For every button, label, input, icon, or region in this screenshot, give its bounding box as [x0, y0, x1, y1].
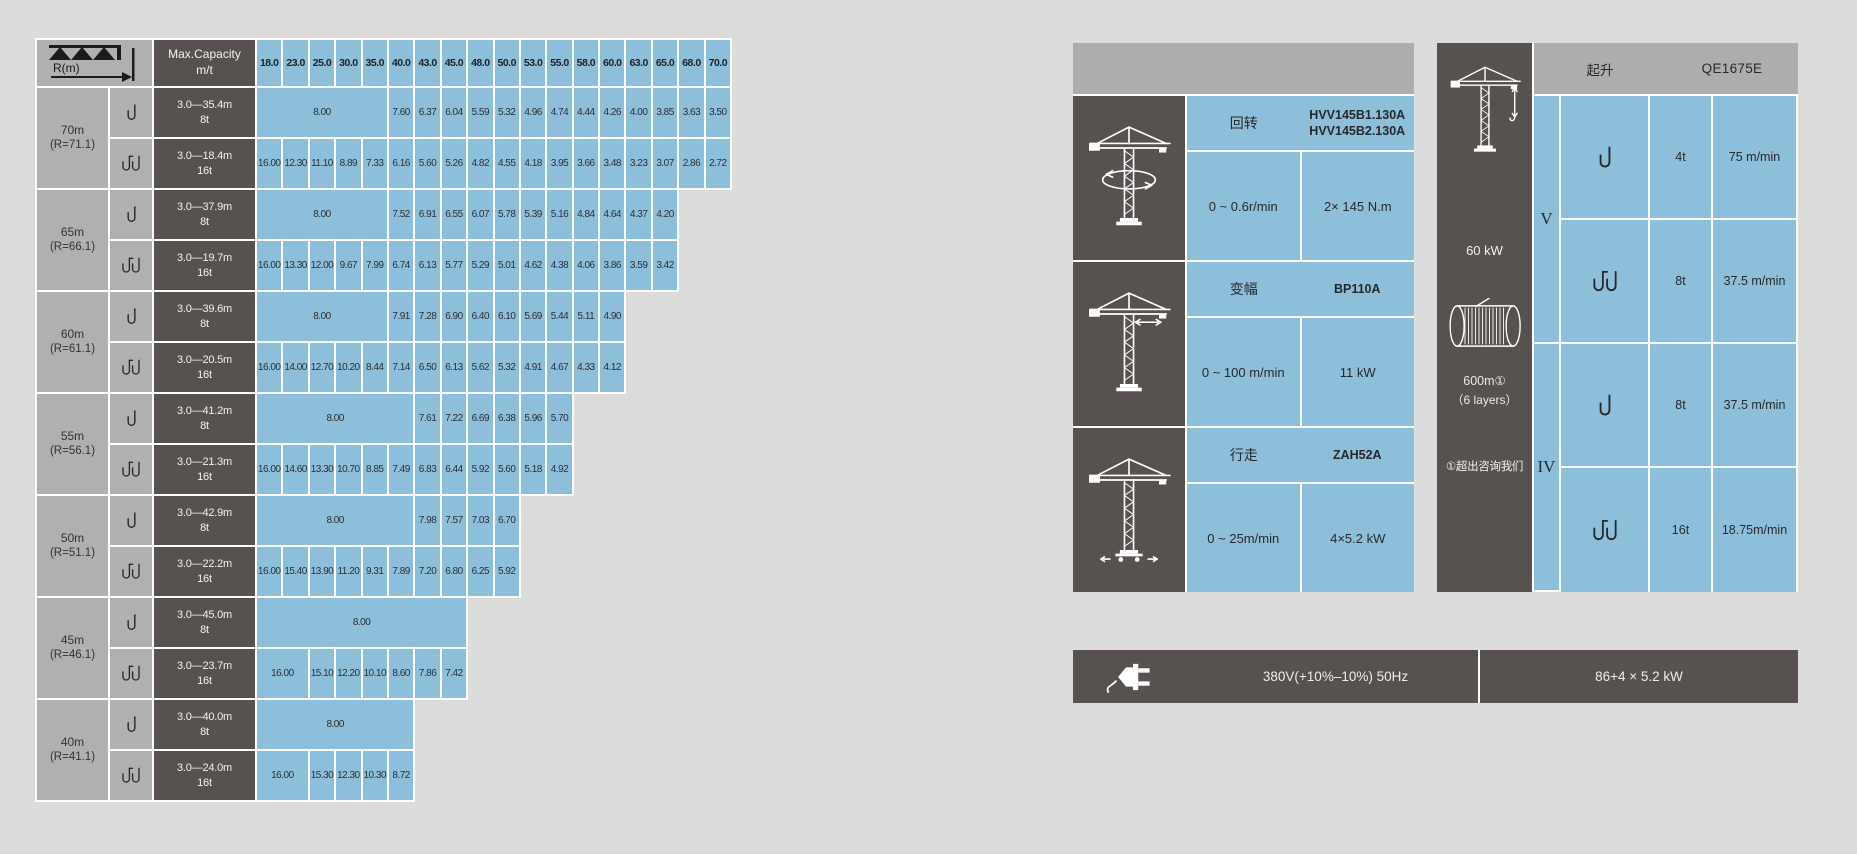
working-range: 3.0—41.2m — [177, 404, 232, 419]
rope-footnote: ①超出咨询我们 — [1437, 458, 1532, 474]
capacity-cell: 9.67 — [336, 241, 362, 292]
radius-column-header: 70.0 — [706, 40, 732, 88]
single-hook-icon — [124, 307, 139, 326]
max-load: 8t — [200, 113, 209, 128]
single-hook-icon — [124, 205, 139, 224]
capacity-cell: 6.55 — [442, 190, 468, 241]
radius-axis-label: R(m) — [53, 61, 80, 75]
capacity-cell: 3.07 — [653, 139, 679, 190]
hoist-motor-column: 60 kW 600m① （6 layers） ①超出咨询我们 — [1437, 43, 1534, 592]
working-range: 3.0—23.7m — [177, 659, 232, 674]
jib-length-cell: 55m(R=56.1) — [37, 394, 110, 496]
working-range-cell: 3.0—42.9m8t — [154, 496, 257, 547]
hook-config-cell — [110, 751, 154, 802]
capacity-cell: 3.42 — [653, 241, 679, 292]
radius-column-header: 35.0 — [363, 40, 389, 88]
mechanism-power: 11 kW — [1300, 318, 1415, 426]
hook-config-cell — [110, 88, 154, 139]
capacity-cell: 5.77 — [442, 241, 468, 292]
capacity-cell: 5.32 — [495, 343, 521, 394]
capacity-cell: 4.06 — [574, 241, 600, 292]
jib-length-cell: 70m(R=71.1) — [37, 88, 110, 190]
double-hook-icon — [119, 256, 143, 275]
radius-column-header: 43.0 — [415, 40, 441, 88]
capacity-cell: 6.37 — [415, 88, 441, 139]
capacity-cell: 5.44 — [547, 292, 573, 343]
capacity-cell: 15.10 — [310, 649, 336, 700]
rope-drum-illustration — [1444, 298, 1528, 359]
hoist-load-cell: 4t — [1650, 96, 1713, 220]
capacity-cell: 7.57 — [442, 496, 468, 547]
capacity-span-cell: 8.00 — [257, 190, 389, 241]
working-range: 3.0—45.0m — [177, 608, 232, 623]
capacity-cell: 4.84 — [574, 190, 600, 241]
single-hook-icon — [124, 103, 139, 122]
hoist-speed-cell: 75 m/min — [1713, 96, 1798, 220]
max-load: 8t — [200, 215, 209, 230]
radius-column-header: 40.0 — [389, 40, 415, 88]
capacity-cell: 14.00 — [283, 343, 309, 394]
capacity-cell: 10.70 — [336, 445, 362, 496]
working-range: 3.0—42.9m — [177, 506, 232, 521]
capacity-cell: 3.50 — [706, 88, 732, 139]
capacity-span-cell: 16.00 — [257, 649, 310, 700]
max-radius: (R=66.1) — [50, 240, 95, 255]
capacity-cell: 12.30 — [283, 139, 309, 190]
capacity-cell: 16.00 — [257, 547, 283, 598]
capacity-cell: 5.18 — [521, 445, 547, 496]
capacity-cell: 5.92 — [468, 445, 494, 496]
mechanism-name: 回转 — [1187, 113, 1301, 133]
capacity-cell: 8.72 — [389, 751, 415, 802]
capacity-cell: 7.22 — [442, 394, 468, 445]
spec-section-travel: 行走ZAH52A0 ~ 25m/min4×5.2 kW — [1073, 428, 1414, 592]
capacity-cell: 6.04 — [442, 88, 468, 139]
rope-drum-icon — [1444, 298, 1528, 354]
capacity-cell: 13.90 — [310, 547, 336, 598]
capacity-cell: 4.91 — [521, 343, 547, 394]
jib-length: 70m — [61, 123, 84, 139]
capacity-cell: 16.00 — [257, 343, 283, 394]
double-hook-icon — [119, 154, 143, 173]
hook-config-cell — [110, 700, 154, 751]
capacity-cell: 4.18 — [521, 139, 547, 190]
single-hook-icon — [124, 511, 139, 530]
spec-right: 回转HVV145B1.130AHVV145B2.130A0 ~ 0.6r/min… — [1187, 96, 1414, 260]
trolley-crane-icon — [1079, 281, 1179, 407]
capacity-cell: 4.96 — [521, 88, 547, 139]
capacity-cell: 7.61 — [415, 394, 441, 445]
capacity-span-cell: 8.00 — [257, 496, 415, 547]
capacity-cell: 3.23 — [626, 139, 652, 190]
jib-length-cell: 60m(R=61.1) — [37, 292, 110, 394]
max-capacity-line1: Max.Capacity — [168, 47, 241, 63]
load-capacity-table: R(m) Max.Capacity m/t 18.023.025.030.035… — [35, 38, 732, 802]
double-hook-icon — [1589, 518, 1621, 543]
capacity-cell: 4.00 — [626, 88, 652, 139]
capacity-cell: 3.95 — [547, 139, 573, 190]
capacity-cell: 5.32 — [495, 88, 521, 139]
hoist-title: 起升 — [1534, 59, 1666, 79]
capacity-cell: 7.28 — [415, 292, 441, 343]
working-range-cell: 3.0—37.9m8t — [154, 190, 257, 241]
supply-voltage: 380V(+10%–10%) 50Hz — [1193, 650, 1480, 703]
radius-column-header: 63.0 — [626, 40, 652, 88]
hoist-table-area: 起升 QE1675E V4t75 m/min8t37.5 m/minIV8t37… — [1534, 43, 1798, 592]
capacity-cell: 6.10 — [495, 292, 521, 343]
radius-column-header: 25.0 — [310, 40, 336, 88]
capacity-cell: 5.26 — [442, 139, 468, 190]
capacity-cell: 8.85 — [363, 445, 389, 496]
capacity-cell: 6.69 — [468, 394, 494, 445]
capacity-cell: 4.90 — [600, 292, 626, 343]
plug-icon-cell — [1073, 650, 1193, 703]
radius-column-header: 55.0 — [547, 40, 573, 88]
spec-label-row: 回转HVV145B1.130AHVV145B2.130A — [1187, 96, 1414, 152]
mechanism-spec-panel: 回转HVV145B1.130AHVV145B2.130A0 ~ 0.6r/min… — [1073, 43, 1414, 592]
capacity-cell: 6.70 — [495, 496, 521, 547]
capacity-cell: 3.48 — [600, 139, 626, 190]
capacity-span-cell: 8.00 — [257, 292, 389, 343]
capacity-cell: 7.89 — [389, 547, 415, 598]
double-hook-icon — [119, 358, 143, 377]
jib-length-cell: 45m(R=46.1) — [37, 598, 110, 700]
mechanism-power: 2× 145 N.m — [1300, 152, 1415, 260]
capacity-cell: 4.20 — [653, 190, 679, 241]
mechanism-model-line: HVV145B1.130A — [1301, 107, 1415, 123]
double-hook-icon — [119, 664, 143, 683]
hoist-load-cell: 8t — [1650, 220, 1713, 344]
capacity-cell: 7.03 — [468, 496, 494, 547]
radius-column-header: 45.0 — [442, 40, 468, 88]
working-range: 3.0—18.4m — [177, 149, 232, 164]
gear-label-cell: V — [1534, 96, 1561, 344]
mechanism-model: BP110A — [1301, 281, 1415, 297]
working-range: 3.0—37.9m — [177, 200, 232, 215]
capacity-cell: 12.70 — [310, 343, 336, 394]
mechanism-power: 4×5.2 kW — [1300, 484, 1415, 592]
capacity-cell: 6.13 — [415, 241, 441, 292]
jib-length: 45m — [61, 633, 84, 649]
mechanism-model: HVV145B1.130AHVV145B2.130A — [1301, 107, 1415, 140]
table-corner-cell: R(m) — [37, 40, 154, 88]
capacity-cell: 5.96 — [521, 394, 547, 445]
jib-length-cell: 40m(R=41.1) — [37, 700, 110, 802]
radius-column-header: 50.0 — [495, 40, 521, 88]
max-load: 8t — [200, 317, 209, 332]
capacity-span-cell: 8.00 — [257, 598, 468, 649]
spec-right: 变幅BP110A0 ~ 100 m/min11 kW — [1187, 262, 1414, 426]
capacity-cell: 11.20 — [336, 547, 362, 598]
working-range-cell: 3.0—41.2m8t — [154, 394, 257, 445]
max-load: 16t — [197, 776, 212, 791]
capacity-cell: 6.38 — [495, 394, 521, 445]
spec-illustration-cell — [1073, 96, 1187, 260]
mechanism-model-line: HVV145B2.130A — [1301, 123, 1415, 139]
single-hook-icon — [124, 613, 139, 632]
capacity-cell: 10.10 — [363, 649, 389, 700]
capacity-cell: 4.38 — [547, 241, 573, 292]
hook-config-cell — [110, 496, 154, 547]
capacity-cell: 4.62 — [521, 241, 547, 292]
max-capacity-header: Max.Capacity m/t — [154, 40, 257, 88]
hoist-speed-cell: 18.75m/min — [1713, 468, 1798, 592]
hoist-crane-icon — [1442, 57, 1528, 165]
capacity-cell: 5.60 — [495, 445, 521, 496]
radius-column-header: 30.0 — [336, 40, 362, 88]
hook-config-cell — [110, 241, 154, 292]
capacity-cell: 6.83 — [415, 445, 441, 496]
spec-section-slewing: 回转HVV145B1.130AHVV145B2.130A0 ~ 0.6r/min… — [1073, 96, 1414, 262]
capacity-cell: 11.10 — [310, 139, 336, 190]
capacity-cell: 13.30 — [283, 241, 309, 292]
radius-column-header: 48.0 — [468, 40, 494, 88]
spec-data-row: 0 ~ 100 m/min11 kW — [1187, 318, 1414, 426]
max-radius: (R=56.1) — [50, 444, 95, 459]
hoist-speed-cell: 37.5 m/min — [1713, 220, 1798, 344]
hook-config-cell — [110, 547, 154, 598]
capacity-cell: 5.78 — [495, 190, 521, 241]
capacity-cell: 8.89 — [336, 139, 362, 190]
max-load: 8t — [200, 725, 209, 740]
capacity-cell: 9.31 — [363, 547, 389, 598]
single-hook-icon — [1595, 393, 1615, 418]
capacity-cell: 5.60 — [415, 139, 441, 190]
jib-length: 40m — [61, 735, 84, 751]
radius-column-header: 60.0 — [600, 40, 626, 88]
capacity-cell: 5.16 — [547, 190, 573, 241]
capacity-cell: 6.25 — [468, 547, 494, 598]
radius-column-header: 68.0 — [679, 40, 705, 88]
capacity-cell: 3.66 — [574, 139, 600, 190]
capacity-cell: 5.70 — [547, 394, 573, 445]
capacity-cell: 15.40 — [283, 547, 309, 598]
capacity-cell: 2.86 — [679, 139, 705, 190]
jib-length-cell: 65m(R=66.1) — [37, 190, 110, 292]
spec-data-row: 0 ~ 0.6r/min2× 145 N.m — [1187, 152, 1414, 260]
capacity-cell: 6.40 — [468, 292, 494, 343]
spec-panel-header-bar — [1073, 43, 1414, 96]
capacity-cell: 5.11 — [574, 292, 600, 343]
working-range-cell: 3.0—22.2m16t — [154, 547, 257, 598]
capacity-cell: 5.01 — [495, 241, 521, 292]
working-range: 3.0—21.3m — [177, 455, 232, 470]
mechanism-model: ZAH52A — [1301, 447, 1415, 463]
hoist-motor-power: 60 kW — [1437, 243, 1532, 258]
capacity-cell: 6.80 — [442, 547, 468, 598]
working-range-cell: 3.0—45.0m8t — [154, 598, 257, 649]
hook-config-cell — [110, 292, 154, 343]
hoist-crane-illustration — [1442, 57, 1528, 170]
max-radius: (R=71.1) — [50, 138, 95, 153]
mechanism-name: 变幅 — [1187, 279, 1301, 299]
capacity-cell: 4.67 — [547, 343, 573, 394]
radius-column-header: 65.0 — [653, 40, 679, 88]
jib-length: 55m — [61, 429, 84, 445]
hook-config-cell — [110, 343, 154, 394]
slewing-crane-icon — [1079, 115, 1179, 241]
capacity-cell: 7.33 — [363, 139, 389, 190]
single-hook-icon — [124, 715, 139, 734]
mechanism-speed: 0 ~ 0.6r/min — [1187, 152, 1300, 260]
spec-label-row: 变幅BP110A — [1187, 262, 1414, 318]
spec-illustration-cell — [1073, 428, 1187, 592]
capacity-cell: 6.07 — [468, 190, 494, 241]
capacity-cell: 8.60 — [389, 649, 415, 700]
capacity-cell: 7.14 — [389, 343, 415, 394]
capacity-cell: 7.20 — [415, 547, 441, 598]
capacity-cell: 7.98 — [415, 496, 441, 547]
working-range-cell: 3.0—23.7m16t — [154, 649, 257, 700]
capacity-cell: 12.30 — [336, 751, 362, 802]
double-hook-icon — [119, 460, 143, 479]
capacity-cell: 14.60 — [283, 445, 309, 496]
working-range: 3.0—39.6m — [177, 302, 232, 317]
max-load: 16t — [197, 674, 212, 689]
hoist-hook-cell — [1561, 344, 1650, 468]
capacity-cell: 5.59 — [468, 88, 494, 139]
capacity-cell: 4.92 — [547, 445, 573, 496]
spec-data-row: 0 ~ 25m/min4×5.2 kW — [1187, 484, 1414, 592]
capacity-cell: 4.33 — [574, 343, 600, 394]
jib-radius-icon: R(m) — [43, 41, 147, 85]
radius-column-header: 23.0 — [283, 40, 309, 88]
capacity-cell: 7.52 — [389, 190, 415, 241]
spec-illustration-cell — [1073, 262, 1187, 426]
working-range-cell: 3.0—18.4m16t — [154, 139, 257, 190]
max-load: 16t — [197, 572, 212, 587]
capacity-cell: 7.42 — [442, 649, 468, 700]
capacity-cell: 8.44 — [363, 343, 389, 394]
max-load: 16t — [197, 368, 212, 383]
capacity-cell: 3.85 — [653, 88, 679, 139]
mechanism-speed: 0 ~ 25m/min — [1187, 484, 1300, 592]
single-hook-icon — [124, 409, 139, 428]
rope-length: 600m① — [1437, 373, 1532, 388]
max-load: 16t — [197, 266, 212, 281]
working-range: 3.0—20.5m — [177, 353, 232, 368]
jib-length: 60m — [61, 327, 84, 343]
capacity-cell: 6.90 — [442, 292, 468, 343]
hook-config-cell — [110, 649, 154, 700]
capacity-span-cell: 8.00 — [257, 394, 415, 445]
travel-crane-icon — [1079, 447, 1179, 573]
working-range-cell: 3.0—35.4m8t — [154, 88, 257, 139]
working-range-cell: 3.0—40.0m8t — [154, 700, 257, 751]
capacity-cell: 10.30 — [363, 751, 389, 802]
max-radius: (R=46.1) — [50, 648, 95, 663]
hoist-load-cell: 8t — [1650, 344, 1713, 468]
capacity-span-cell: 8.00 — [257, 88, 389, 139]
capacity-cell: 3.63 — [679, 88, 705, 139]
capacity-cell: 4.26 — [600, 88, 626, 139]
jib-length: 50m — [61, 531, 84, 547]
working-range-cell: 3.0—39.6m8t — [154, 292, 257, 343]
max-load: 8t — [200, 521, 209, 536]
capacity-span-cell: 8.00 — [257, 700, 415, 751]
capacity-cell: 16.00 — [257, 241, 283, 292]
capacity-cell: 4.64 — [600, 190, 626, 241]
mechanism-name: 行走 — [1187, 445, 1301, 465]
capacity-cell: 4.37 — [626, 190, 652, 241]
hook-config-cell — [110, 394, 154, 445]
capacity-cell: 12.20 — [336, 649, 362, 700]
max-radius: (R=51.1) — [50, 546, 95, 561]
working-range: 3.0—35.4m — [177, 98, 232, 113]
capacity-cell: 7.86 — [415, 649, 441, 700]
capacity-cell: 2.72 — [706, 139, 732, 190]
working-range: 3.0—22.2m — [177, 557, 232, 572]
spec-label-row: 行走ZAH52A — [1187, 428, 1414, 484]
hook-config-cell — [110, 190, 154, 241]
capacity-cell: 10.20 — [336, 343, 362, 394]
double-hook-icon — [1589, 269, 1621, 294]
mechanism-model-line: BP110A — [1301, 281, 1415, 297]
hoist-spec-panel: 60 kW 600m① （6 layers） ①超出咨询我们 起升 QE1675… — [1437, 43, 1798, 592]
single-hook-icon — [1595, 145, 1615, 170]
capacity-cell: 4.82 — [468, 139, 494, 190]
capacity-cell: 5.39 — [521, 190, 547, 241]
hook-config-cell — [110, 139, 154, 190]
capacity-cell: 6.91 — [415, 190, 441, 241]
capacity-cell: 6.16 — [389, 139, 415, 190]
spec-sections: 回转HVV145B1.130AHVV145B2.130A0 ~ 0.6r/min… — [1073, 96, 1414, 592]
capacity-cell: 16.00 — [257, 445, 283, 496]
capacity-cell: 7.60 — [389, 88, 415, 139]
double-hook-icon — [119, 562, 143, 581]
max-load: 16t — [197, 470, 212, 485]
capacity-cell: 4.74 — [547, 88, 573, 139]
capacity-cell: 6.13 — [442, 343, 468, 394]
capacity-cell: 15.30 — [310, 751, 336, 802]
jib-length: 65m — [61, 225, 84, 241]
power-plug-icon — [1105, 657, 1161, 697]
mechanism-speed: 0 ~ 100 m/min — [1187, 318, 1300, 426]
jib-length-cell: 50m(R=51.1) — [37, 496, 110, 598]
capacity-cell: 3.59 — [626, 241, 652, 292]
capacity-cell: 7.91 — [389, 292, 415, 343]
hoist-speed-table: V4t75 m/min8t37.5 m/minIV8t37.5 m/min16t… — [1534, 96, 1798, 592]
power-supply-bar: 380V(+10%–10%) 50Hz 86+4 × 5.2 kW — [1073, 650, 1798, 703]
hoist-model: QE1675E — [1666, 61, 1798, 76]
capacity-cell: 5.92 — [495, 547, 521, 598]
working-range-cell: 3.0—20.5m16t — [154, 343, 257, 394]
working-range: 3.0—40.0m — [177, 710, 232, 725]
working-range: 3.0—19.7m — [177, 251, 232, 266]
capacity-cell: 5.69 — [521, 292, 547, 343]
gear-label-cell: IV — [1534, 344, 1561, 592]
hoist-hook-cell — [1561, 468, 1650, 592]
hoist-hook-cell — [1561, 220, 1650, 344]
hoist-speed-cell: 37.5 m/min — [1713, 344, 1798, 468]
max-load: 8t — [200, 419, 209, 434]
capacity-cell: 13.30 — [310, 445, 336, 496]
capacity-cell: 12.00 — [310, 241, 336, 292]
capacity-span-cell: 16.00 — [257, 751, 310, 802]
working-range-cell: 3.0—21.3m16t — [154, 445, 257, 496]
hook-config-cell — [110, 445, 154, 496]
mechanism-model-line: ZAH52A — [1301, 447, 1415, 463]
double-hook-icon — [119, 766, 143, 785]
rope-layers: （6 layers） — [1437, 391, 1532, 408]
max-radius: (R=41.1) — [50, 750, 95, 765]
capacity-cell: 5.29 — [468, 241, 494, 292]
spec-section-trolley: 变幅BP110A0 ~ 100 m/min11 kW — [1073, 262, 1414, 428]
max-load: 8t — [200, 623, 209, 638]
max-load: 16t — [197, 164, 212, 179]
hoist-hook-cell — [1561, 96, 1650, 220]
working-range: 3.0—24.0m — [177, 761, 232, 776]
